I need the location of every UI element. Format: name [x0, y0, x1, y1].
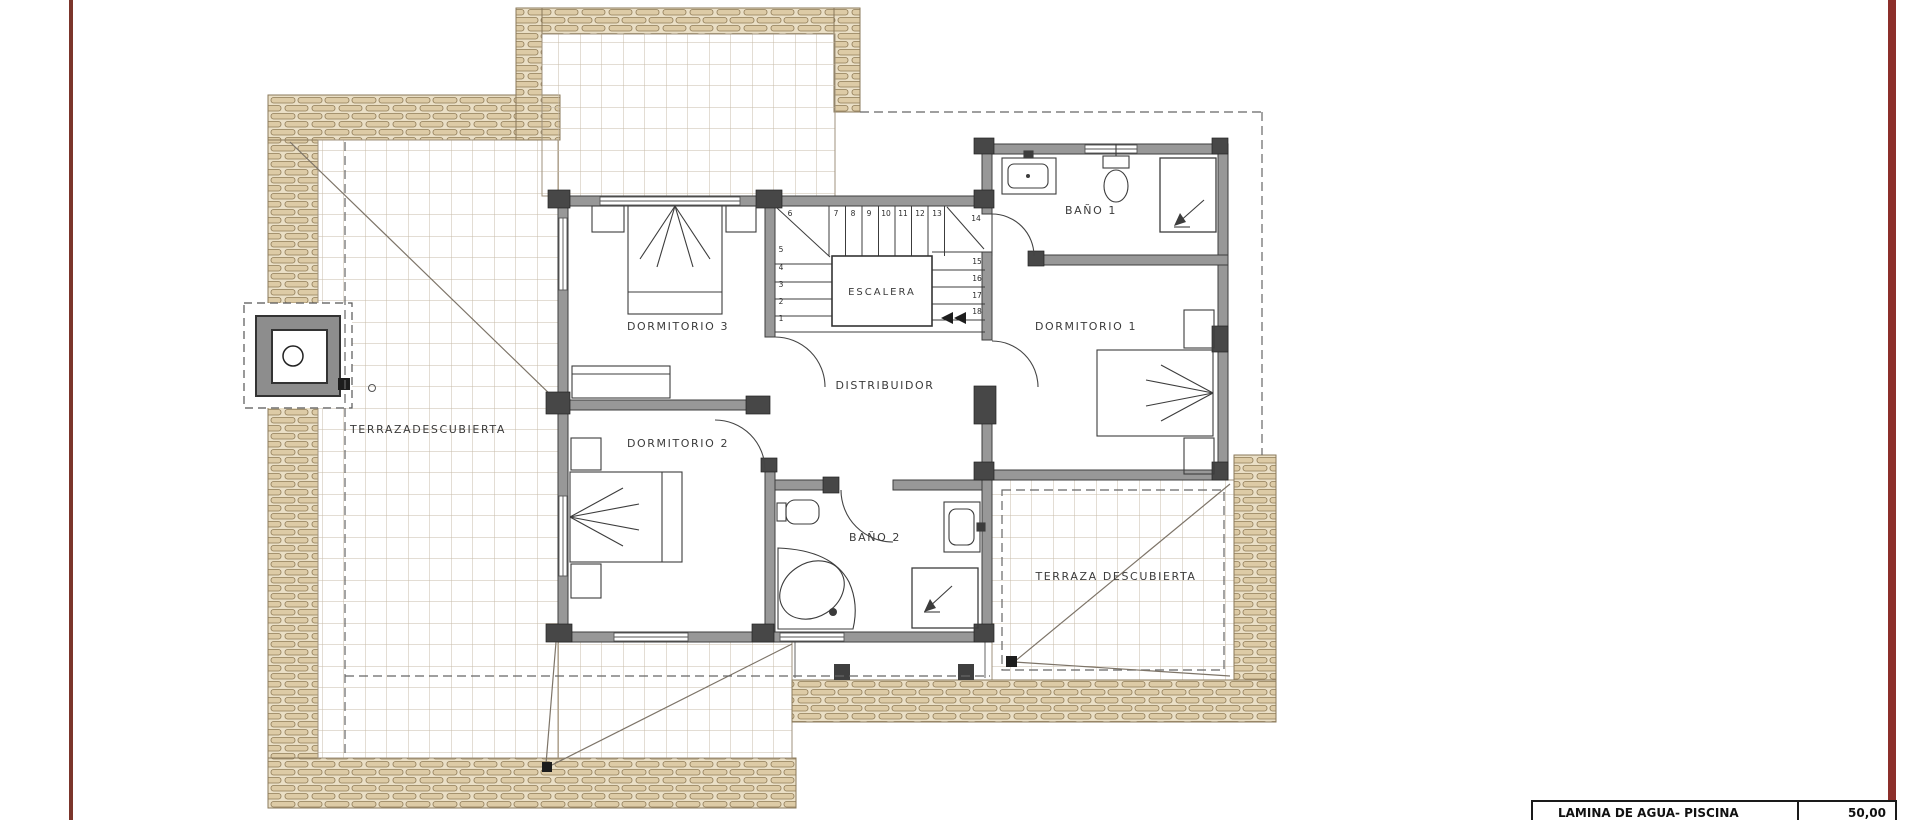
legend-row-label: LAMINA DE AGUA- PISCINA	[1558, 806, 1739, 820]
svg-text:4: 4	[779, 263, 784, 272]
svg-text:8: 8	[851, 209, 856, 218]
window	[600, 197, 740, 205]
bano2-label: BAÑO 2	[849, 531, 901, 544]
svg-text:9: 9	[867, 209, 872, 218]
chimney-structure	[244, 303, 352, 408]
svg-text:14: 14	[971, 214, 981, 223]
svg-text:10: 10	[881, 209, 891, 218]
left-margin-line	[69, 0, 73, 820]
legend-table: LAMINA DE AGUA- PISCINA 50,00	[1532, 801, 1896, 820]
svg-text:6: 6	[788, 209, 793, 218]
terraza-right-label: TERRAZA DESCUBIERTA	[1034, 570, 1196, 583]
window	[614, 633, 688, 641]
svg-text:12: 12	[915, 209, 925, 218]
window	[559, 218, 567, 290]
roof-point-marker	[542, 762, 552, 772]
terraza-left-label: TERRAZADESCUBIERTA	[349, 423, 506, 436]
porch-column	[958, 664, 974, 680]
svg-text:15: 15	[972, 257, 982, 266]
terraza-left-tile-grid-lower	[558, 642, 792, 758]
floor-plan-sheet: TERRAZADESCUBIERTA TERRAZA DESCUBIERTA	[0, 0, 1920, 820]
dormitorio2-label: DORMITORIO 2	[627, 437, 729, 450]
bano1-label: BAÑO 1	[1065, 204, 1117, 217]
svg-text:11: 11	[898, 209, 908, 218]
svg-text:18: 18	[972, 307, 982, 316]
svg-text:3: 3	[779, 280, 784, 289]
dormitorio3-label: DORMITORIO 3	[627, 320, 729, 333]
porch-tile-grid	[542, 34, 835, 196]
svg-text:5: 5	[779, 245, 784, 254]
window	[1085, 145, 1137, 153]
roof-point-marker	[1006, 656, 1017, 667]
legend-row-value: 50,00	[1848, 806, 1886, 820]
terraza-left-tile-grid	[318, 140, 558, 758]
distribuidor-label: DISTRIBUIDOR	[835, 379, 934, 392]
svg-text:16: 16	[972, 274, 982, 283]
svg-text:2: 2	[779, 297, 784, 306]
dormitorio1-label: DORMITORIO 1	[1035, 320, 1137, 333]
window	[780, 633, 844, 641]
svg-text:7: 7	[834, 209, 839, 218]
right-margin-line	[1888, 0, 1896, 820]
svg-text:17: 17	[972, 291, 982, 300]
escalera-label: ESCALERA	[848, 287, 916, 298]
porch-column	[834, 664, 850, 680]
svg-text:13: 13	[932, 209, 942, 218]
window	[559, 496, 567, 576]
svg-text:1: 1	[779, 314, 784, 323]
porch-roof-top	[516, 8, 860, 196]
